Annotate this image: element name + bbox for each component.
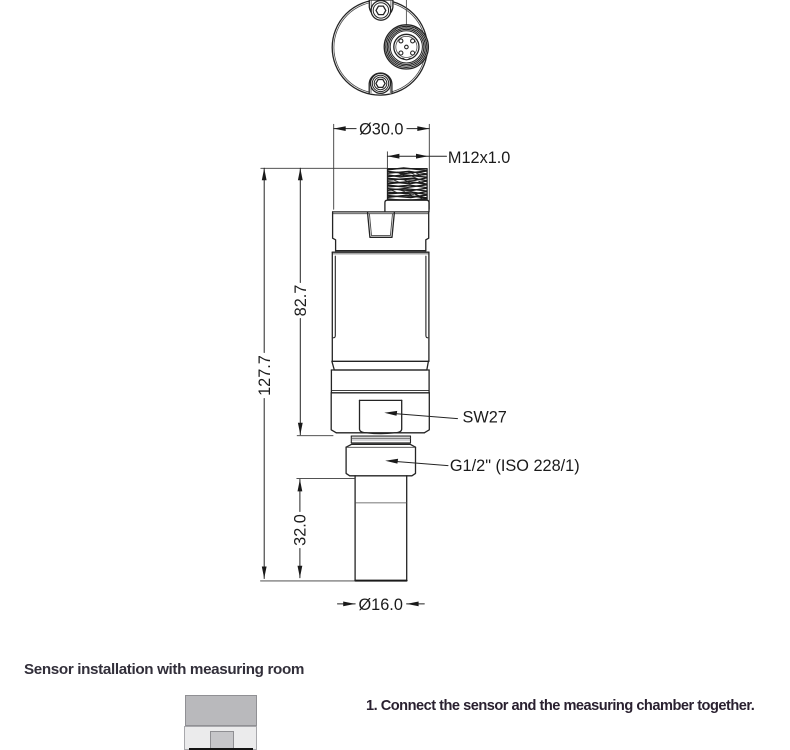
svg-text:Ø30.0: Ø30.0 bbox=[359, 120, 403, 138]
svg-text:Ø16.0: Ø16.0 bbox=[359, 596, 403, 614]
svg-text:G1/2" (ISO 228/1): G1/2" (ISO 228/1) bbox=[450, 457, 580, 475]
svg-text:127.7: 127.7 bbox=[256, 355, 274, 396]
svg-text:82.7: 82.7 bbox=[292, 285, 310, 317]
svg-text:M12x1.0: M12x1.0 bbox=[448, 149, 510, 167]
svg-text:32.0: 32.0 bbox=[292, 514, 310, 546]
svg-text:SW27: SW27 bbox=[463, 409, 507, 427]
